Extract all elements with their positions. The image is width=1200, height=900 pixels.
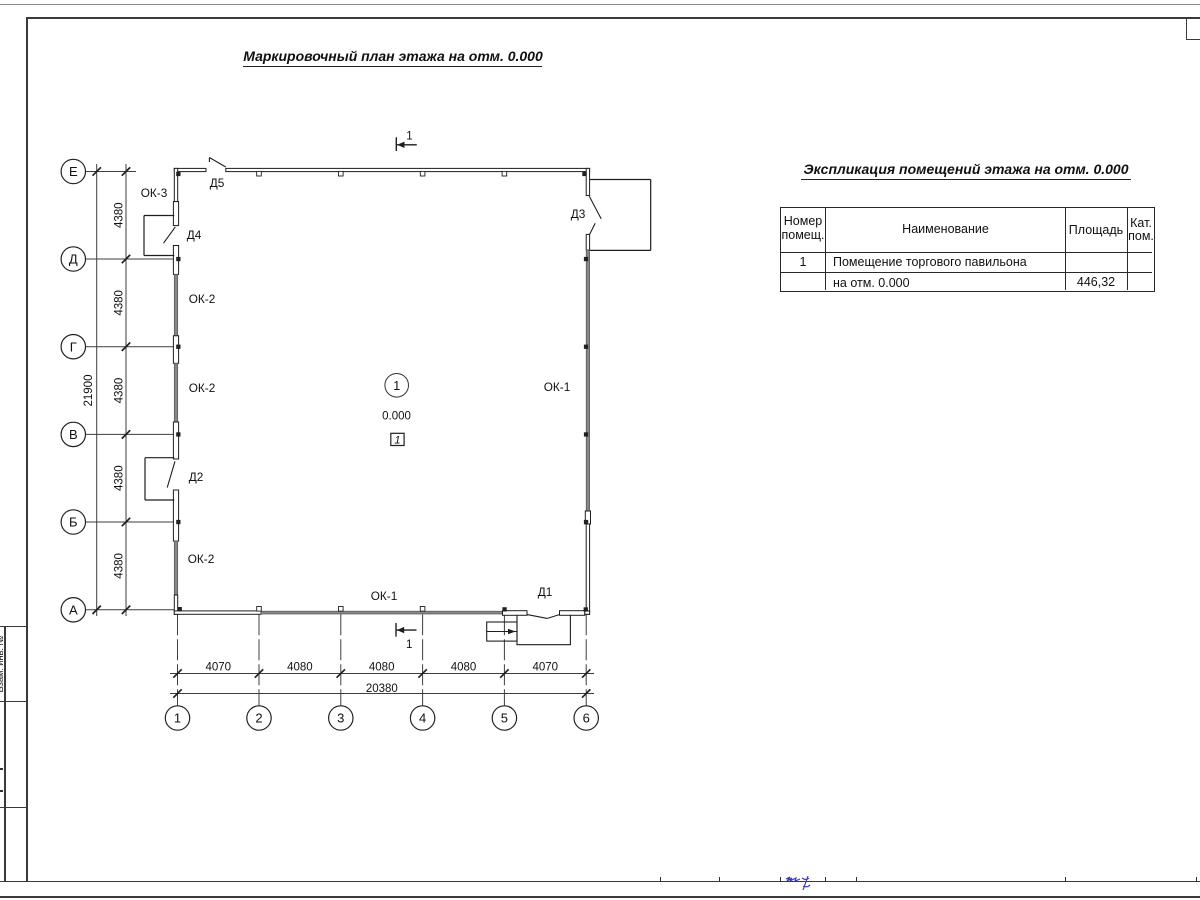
svg-text:4380: 4380 — [114, 553, 126, 579]
svg-text:Б: Б — [69, 515, 78, 530]
svg-text:4380: 4380 — [114, 202, 126, 228]
svg-text:Д: Д — [69, 252, 78, 267]
svg-text:1: 1 — [393, 379, 400, 393]
svg-text:4080: 4080 — [451, 662, 477, 674]
svg-text:Д4: Д4 — [187, 228, 202, 242]
svg-text:ОК-1: ОК-1 — [371, 589, 398, 603]
svg-text:5: 5 — [501, 711, 508, 726]
svg-text:А: А — [69, 602, 78, 617]
svg-text:1: 1 — [406, 131, 412, 143]
svg-text:0.000: 0.000 — [382, 411, 411, 423]
svg-text:Д1: Д1 — [538, 585, 553, 599]
svg-text:ОК-2: ОК-2 — [189, 292, 216, 306]
svg-text:4: 4 — [419, 711, 426, 726]
svg-text:2: 2 — [255, 711, 262, 726]
svg-text:Д5: Д5 — [210, 176, 225, 190]
svg-text:1: 1 — [174, 711, 181, 726]
svg-text:4080: 4080 — [287, 662, 313, 674]
svg-text:ОК-2: ОК-2 — [188, 552, 215, 566]
svg-text:В: В — [69, 427, 78, 442]
svg-text:4080: 4080 — [369, 662, 395, 674]
svg-text:3: 3 — [337, 711, 344, 726]
svg-text:Д3: Д3 — [571, 207, 586, 221]
svg-text:4380: 4380 — [114, 290, 126, 316]
svg-text:ОК-2: ОК-2 — [189, 381, 216, 395]
svg-text:4380: 4380 — [114, 378, 126, 404]
svg-text:1: 1 — [394, 434, 400, 446]
svg-text:6: 6 — [583, 711, 590, 726]
svg-text:ОК-3: ОК-3 — [141, 186, 168, 200]
svg-text:ОК-1: ОК-1 — [544, 380, 571, 394]
svg-text:20380: 20380 — [366, 683, 398, 695]
svg-text:Е: Е — [69, 164, 78, 179]
svg-text:Г: Г — [70, 339, 77, 354]
svg-text:1: 1 — [406, 639, 412, 651]
svg-text:Д2: Д2 — [189, 470, 204, 484]
svg-text:21900: 21900 — [83, 375, 95, 407]
svg-text:4070: 4070 — [533, 662, 559, 674]
svg-text:4070: 4070 — [205, 662, 231, 674]
svg-text:4380: 4380 — [114, 465, 126, 491]
